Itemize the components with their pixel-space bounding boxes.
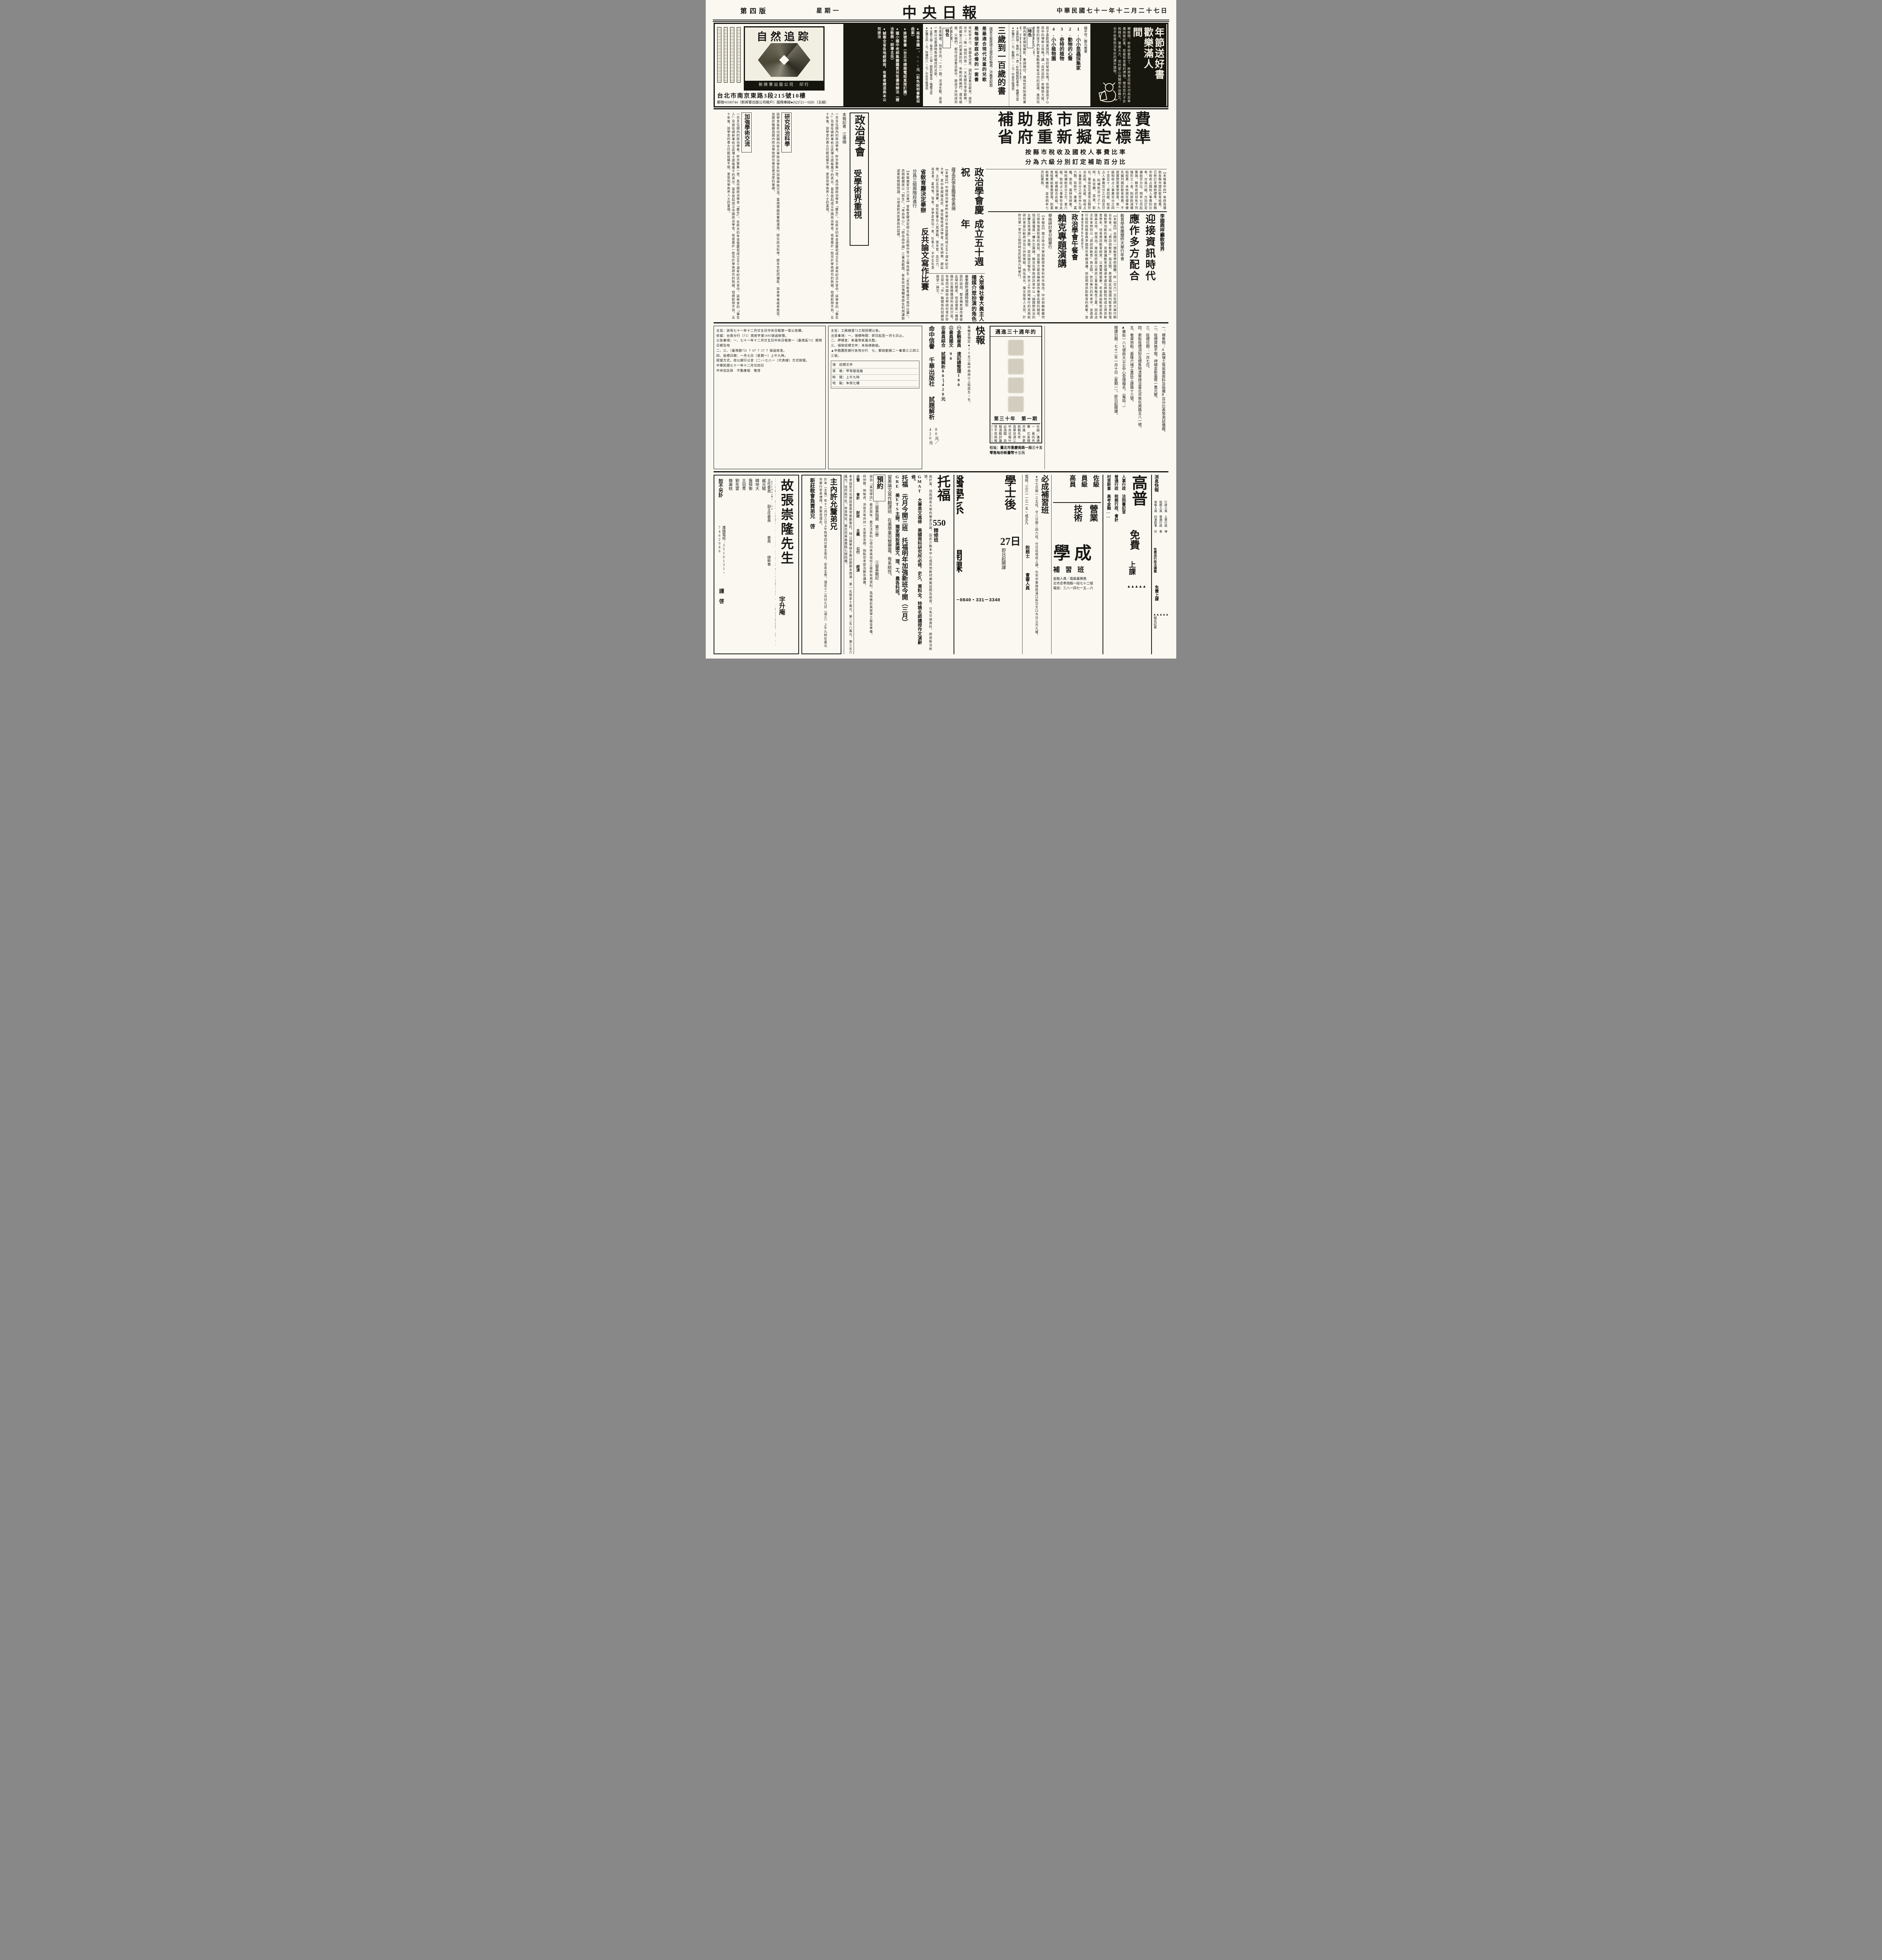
nature-feature-label: 特色 <box>1027 28 1033 48</box>
tender-line: 二、投標資格不限，押標金新臺幣一萬元整。 <box>1151 326 1159 469</box>
bicheng-title: 必成補習班 <box>1039 475 1050 601</box>
ordering-info-panel: ●兩套合購一、○○○元（彩色說明書歡迎函索）●掛號寄書（台北市請撥電話直接訂購）… <box>844 24 923 106</box>
reserve-note: 採自「美加學訊」最近兩年，農文法各科心得均係美加校之最新有用資料，爲搭機赴美留學… <box>867 475 873 651</box>
book-spine <box>717 27 721 83</box>
essay-subhead: 分爲三組兩階段進行 <box>910 169 919 261</box>
publisher-postal-phone: 郵撥•0100744（新將軍出版公司帳戶）服務專線●(02)721－0281（五… <box>717 100 842 105</box>
nature-book-cover-panel: 自然追踪 新將軍出版公司 印行 台北市南京東路3段215號10樓 郵撥•0100… <box>715 24 844 106</box>
new-year-gift-panel: 年節送好書 歡樂滿人間 轉眼間，新年就要到了，新將軍出版公司為您準備兩套好書，是… <box>1090 24 1166 106</box>
toefl-subject: 經濟 <box>856 565 861 583</box>
magazine-ad: 邁進三十週年的 第三十年 第一期 社論／溝通與論一 莫向共匪挑釁 忘英國的反共識… <box>990 326 1042 443</box>
xuecheng-level: 佐級 <box>1089 475 1101 501</box>
bicheng-phone: 電話：三三一一三一五○或五九 <box>1024 475 1029 545</box>
middle-notice-band: 主旨：詳見七十一年十二月廿五日中央日報第一版公告欄。依據：台南分行（71）南密字… <box>714 322 1168 472</box>
gaopu-ad: 高普 免費 上課 ▲▲▲▲▲ 人事行政 法院書記官普通行政 稅務行政、會計村里幹… <box>1106 475 1150 654</box>
feature-subhead-2: 加強學術交流 <box>741 113 752 152</box>
bicheng-body: ▲廿七日開一三五班，廿八日開二四六班，分日班夜班上課。北市中華路與漢口街交叉口今… <box>1030 475 1039 651</box>
exam-press-title: 快報 <box>971 326 987 357</box>
nature-book-cover: 自然追踪 新將軍出版公司 印行 <box>744 26 825 91</box>
reserve-item-2: ②留美散記 <box>873 560 879 603</box>
publisher-address-block: 台北市南京東路3段215號10樓 郵撥•0100744（新將軍出版公司帳戶）服務… <box>717 91 842 105</box>
li-headline-1: 迎接資訊時代 <box>1142 214 1158 319</box>
tender-line: ▲華街一八七號政大公企中心受理報名。（電話：） <box>1119 326 1127 469</box>
obituary-title: 故張崇隆先生 <box>776 479 795 596</box>
lai-headline-2: 賴克專題演講 <box>1054 214 1068 319</box>
nature-book-title: 1.小小昆蟲採集家 <box>1074 26 1083 104</box>
toefl-subject: 企管 <box>856 475 861 493</box>
lead-body: 【本報臺中訊】省府爲補助各縣市國民敎育經費，已新訂定補助標準，依縣市稅收占國校人… <box>986 169 1167 210</box>
bicheng-extra-audit: 會審人員 <box>1024 573 1030 608</box>
exam-press-item: ㊁雇員國文 90 <box>947 326 955 469</box>
songs-title: 三歲到一百歲的書 <box>994 26 1007 104</box>
feature-byline: 本報記者 江偉碩 <box>839 113 848 218</box>
medical-ad: 全國獨家創辦 學士後 27日 即日起開課 醫學系 開課 331－0840・331… <box>957 475 1023 654</box>
ordering-bullet: ●誠徵全省各地經銷商，有意者請逕與本公司接洽 <box>876 27 887 103</box>
media-subhead: 黃季卿昨演講時指出 <box>963 275 970 321</box>
medical-title-degree: 學士後 <box>1000 475 1017 534</box>
gaopu-categories: 人事行政 法院書記官普通行政 稅務行政、會計村里幹事 高考金融…… <box>1106 475 1127 654</box>
nature-authors: 楊平世／鄭元春著 <box>1083 26 1089 104</box>
hexagon-photo-montage <box>758 43 810 77</box>
feature-body-1: 一百多位國內的政治學者，昨天聚集一堂，爲中國政治學會「慶生」。在昨天的年會暨慶祝… <box>793 113 839 319</box>
songs-claims: 是最適合現代兒童的兒歌是每個家庭必備的一套書 <box>972 26 988 104</box>
procurement-table-row: 時 間：上午九時 <box>832 375 918 381</box>
magazine-footer: 社址：臺北市重慶南路一段三十五號三樓 零售每份新臺幣十三元 <box>990 445 1042 469</box>
obituary-closing: 謹 啓 <box>718 588 725 620</box>
feature-body-repeat: 一百多位國內的政治學者，昨天聚集一堂，爲中國政治學會「慶生」。在昨天的年會暨慶祝… <box>714 113 740 319</box>
tender-line: 五、看貨地點：基隆六堵工業區工建路十三號。 <box>1127 326 1135 469</box>
tender-line: 三、投標日期：一月七日。 <box>1143 326 1151 469</box>
songs-spec: ●全套三册・每册二一六頁・精裝附書盒・楷體注音 <box>929 26 933 104</box>
magazine-address: 社址：臺北市重慶南路一段三十五號三樓 <box>990 445 1042 450</box>
strip-exam-item: 稅務人員 普通行政 會 <box>1158 501 1163 548</box>
brand-price: 80元／420元 <box>927 428 939 451</box>
book-spine <box>737 27 741 83</box>
book-spine <box>724 27 728 83</box>
lead-headline-2: 省府重新擬定標準 <box>986 129 1167 146</box>
toefl-ad: 托福 550 精修班 由於美、加兩國各大學的要求日高，因此少數本中心或其他敎材模… <box>856 475 954 654</box>
toefl-subject: 會計 <box>856 493 861 511</box>
obituary-zhang: 故張崇隆先生 字升庵 召息勞歸天，距生於民前四年十一月十三日，在台安息。翌日移遺… <box>714 475 799 654</box>
songs-book-panel: 三歲到一百歲的書 國家文藝獎得主謝武彰編選／洪義男配圖 是最適合現代兒童的兒歌是… <box>923 24 1009 106</box>
bottom-ad-band: 故張崇隆先生 字升庵 召息勞歸天，距生於民前四年十一月十三日，在台安息。翌日移遺… <box>714 471 1168 657</box>
media-headline-2: 社會大眾扮演 <box>970 290 985 306</box>
media-headline-3: 眞主人的角色 <box>970 306 985 322</box>
gift-title-1: 年節送好書 <box>1153 27 1164 103</box>
nature-book-list: 1.小小昆蟲採集家2.動物的心聲3.奇特的植物4.小小植物園 <box>1050 26 1083 104</box>
nature-specs: ●全套四冊・每冊一四○頁・彩色精裝附書盒・楷體注音●定價六八○元／郵購六○○元／… <box>1011 26 1020 104</box>
toefl-subject: 財政 <box>856 511 861 529</box>
li-kicker: 李國鼎呼籲敎育界 <box>1158 214 1167 319</box>
bank-notice-line: 依據：台南分行（71）南密字第1695號函辦理。 <box>716 334 823 339</box>
gaopu-free-2: 上課 <box>1127 561 1137 584</box>
medical-phones: 331－0840・331－3340 <box>957 596 1000 603</box>
li-headline-2: 應作多方配合 <box>1126 214 1142 319</box>
songs-feature-label: 特色 <box>943 28 951 48</box>
bank-notice-line: 中央信託局 不動產組 敬啓 <box>716 368 823 374</box>
translate-class-line: 留美論文寫作翻譯班 在美學業完整豐富，有系統性。 <box>885 475 893 651</box>
reserve-label: 預約 <box>873 475 885 501</box>
xuecheng-track: 技術 <box>1070 505 1085 536</box>
feature-headline-1: 政治學會 <box>852 114 867 169</box>
triangle-markers: ▲▲▲▲▲ <box>1127 584 1150 589</box>
exam-press-item: ㊄雇員綜合 試題解析80～420元 <box>939 326 947 469</box>
procurement-line: 主旨：工務線里72工程招標公告。 <box>831 328 919 334</box>
gift-title-2: 歡樂滿人間 <box>1131 27 1153 74</box>
anniv-body: 【本報訊】中國政治學會昨天擧行年會暨慶祝成立五十週年紀念大會，會中表揚薩孟武、張… <box>932 167 949 270</box>
bank-notice: 主旨：詳見七十一年十二月廿五日中央日報第一版公告欄。依據：台南分行（71）南密字… <box>714 326 826 469</box>
obituary-name: 魏壽桃 <box>727 479 733 650</box>
toefl-subject: 主義 <box>856 529 861 547</box>
strip-free-handout: 免費送行政法講義 <box>1153 548 1157 585</box>
medical-title-dept: 醫學系 <box>957 475 966 549</box>
gaopu-category: 村里幹事 高考金融…… <box>1106 475 1112 654</box>
publisher-address: 台北市南京東路3段215號10樓 <box>717 91 842 100</box>
strip-free-course: 免費上課 <box>1153 585 1159 613</box>
lead-headline-1: 補助縣市國敎經費 <box>986 111 1167 129</box>
obituary-phone: 連絡電話：3510131・7462086 <box>718 526 727 588</box>
magazine-price: 零售每份新臺幣十三元 <box>990 450 1042 455</box>
issue-date: 中華民國七十一年十二月二十七日 <box>1057 6 1168 15</box>
xuecheng-level: 高員 <box>1066 475 1077 501</box>
tender-line: 開課日期：七十二年一月十日（星期一）。即日起開課。 <box>1111 326 1119 469</box>
medical-note: 即日起開課 <box>1000 548 1006 583</box>
toefl-honor-names: 柯仲聰、林瑜貞、洪俊杰等共卅一名榮登金榜，指點您考取及解答講義。 <box>861 475 867 651</box>
toefl-score: 550 <box>933 518 952 528</box>
cover-title: 自然追踪 <box>745 28 823 44</box>
xuecheng-tracks: 營業技術 <box>1053 502 1101 536</box>
bank-notice-line: 公告事項：一、七十一年十二月廿五日中央日報第一（臺南區71）期限日期及地 <box>716 338 823 348</box>
obituary-role-vicechair: 副主任委員 <box>767 505 772 536</box>
weekday-label: 星期一 <box>816 6 841 15</box>
essay-article: 省敎育廳決定擧辦 反共論文寫作比賽 分爲三組兩階段進行 【本報霧峯廿六日電】省敎… <box>871 169 930 323</box>
lai-subhead: 學術研討會分組擧行 <box>1045 214 1054 319</box>
xuecheng-extra: 金融人員／高級業務員 <box>1053 576 1101 581</box>
nature-body: 孩子喜歡問東問西，您招架得住嗎？您想當孩子心目中的博學父母嗎？讓「自然追踪」來獨… <box>1033 26 1050 104</box>
toefl-today-line: 托福 元月今開三班 托福明年加強新班今開（三月） <box>901 475 909 651</box>
gaopu-title: 高普 <box>1127 475 1150 530</box>
songs-specs: ●全套三册・每册二一六頁・精裝附書盒・楷體注音●定價五四○元／特價四八○元／中低… <box>925 26 934 104</box>
xuecheng-address: 北市忠孝西路一段七十二號 <box>1053 581 1101 586</box>
medical-title-open: 開課 <box>957 549 964 596</box>
obituary-name: 王冠靑 <box>740 479 747 650</box>
feature-body-2: 該學會每年均與國內各大學政治學系所加強學術交流，重視理論與實際運用，研究政治科學… <box>753 113 780 319</box>
procurement-line: 三、領取招標文件：本局總務組。 <box>831 343 919 348</box>
lead-headline-block: 補助縣市國敎經費 省府重新擬定標準 按縣市稅收及國校人事費比率 分為六級分別訂定… <box>986 111 1167 169</box>
exam-press-panel: 快報 靑輔會預定▲20名②高中高商以上程度五○名。 ㊀金融雇員 速記總整理100… <box>925 326 987 469</box>
anniv-headline-1: 政治學會慶祝 <box>957 167 985 219</box>
newspaper-page: 第四版 星期一 中央日報 中華民國七十一年十二月二十七日 自然追踪 新將軍出版公… <box>706 0 1176 659</box>
procurement-notice: 主旨：工務線里72工程招標公告。注意事項：一、領標時間：即日起至一月七日止。二、… <box>828 326 922 469</box>
bicheng-extra-tax: 稅務士 <box>1024 545 1030 573</box>
nature-book-title: 3.奇特的植物 <box>1058 26 1066 104</box>
media-body: 面的談話，都宣稱希望改善彼此間的關係，但這僅是一種想藉外交籌碼獲得利益的只是，恢… <box>925 275 963 321</box>
right-exam-strip: 消息快報 行政人員 人事行政 律稅務人員 普通行政 會查帳人員 村里幹事 計金融… <box>1151 475 1168 654</box>
strip-exam-list: 行政人員 人事行政 律稅務人員 普通行政 會查帳人員 村里幹事 計金融人員 書記… <box>1153 501 1168 548</box>
lai-headline-1: 政治學會午餐會 <box>1068 214 1080 319</box>
obituary-role-secretary: 總幹事 <box>767 555 772 579</box>
nature-book-title: 4.小小植物園 <box>1050 26 1058 104</box>
ordering-bullet: ●國小國中老師集體購買另有優待辦法（請洽敎務・訓導主任） <box>889 27 900 103</box>
anniv-subhead: 薩孟武張金鑑等受表揚 <box>949 167 957 270</box>
church-title: 主內許允釐弟兄 <box>828 478 838 648</box>
gre-line: GRE 美ETS主辦，獨家開設美國文、理、工、農各科班。 <box>893 475 901 651</box>
essay-headline-2: 反共論文寫作比賽 <box>919 228 930 302</box>
feature-headline-2: 受學術界重視 <box>852 169 863 236</box>
obituary-names: 臧元駿韓地大龔舜衡王冠靑劉先雲魏壽桃 <box>727 479 767 650</box>
magazine-toc: 社論／溝通與論一 莫向共匪挑釁 忘英國的反共識 中愛德勇統戰先老 我們爲華甘迺三… <box>992 423 1040 443</box>
strip-news-title: 消息快報 <box>1153 475 1159 501</box>
toefl-subject: 公行 <box>856 547 861 565</box>
toefl-body: 由於美、加兩國各大學的要求日高，因此少數本中心或其他敎材模擬試題及師資，以免交換… <box>923 475 933 651</box>
exam-press-item: ㊀金融雇員 速記總整理100 <box>955 326 963 469</box>
exam-press-items: ㊀金融雇員 速記總整理100㊁雇員國文 90㊄雇員綜合 試題解析80～420元 <box>939 326 963 469</box>
header-rule-2 <box>713 21 1169 22</box>
book-spines-illustration <box>717 27 741 83</box>
feature-subhead-1: 研究政治科學 <box>781 113 792 152</box>
ordering-bullet: ●兩套合購一、○○○元（彩色說明書歡迎函索） <box>910 27 920 103</box>
tender-line: 四、索取投標須知及標售物清單請洽臺北市敦化南路五八一號。 <box>1135 326 1143 469</box>
lai-article: 政治學會午餐會 賴克專題演講 學術研討會分組擧行 【本報訊】國立政治大學副敎授李… <box>988 211 1080 323</box>
li-body: 【本報訊】全國廿一個敎育學術團體，昨（廿六）日在師大舉行聯合年會，以「資訊與敎育… <box>1081 214 1117 319</box>
obituary-name: 龔舜衡 <box>747 479 753 650</box>
medical-title-date: 27日 <box>1000 534 1021 548</box>
church-body: 於本（主後）年十二月廿三日上午時零四分蒙主恩召，安息主懷。謹定十二月廿九日（週三… <box>816 478 828 648</box>
obituary-name: 劉先雲 <box>733 479 740 650</box>
essay-headline-1: 省敎育廳決定擧辦 <box>919 169 926 228</box>
bank-notice-line: 二、三、（臺灣銀73）？0？？5？？號函核准。 <box>716 348 823 354</box>
drama-contest-notice: 本會接受文化建設委員會策劃委託，特公開擧辦多幕話劇劇本徵選：第一名獎金十萬元，第… <box>844 475 854 654</box>
xuecheng-name: 學成 <box>1053 539 1101 564</box>
lai-body: 【本報訊】國立政治大學副敎授李登科昨天指出，中共與蘇聯雖然已經恢復面對面的談話，… <box>988 214 1045 319</box>
magazine-kicker: 邁進三十週年的 <box>990 327 1041 337</box>
brand-solutions: 試題解析 <box>927 396 936 428</box>
procurement-table-row: 地 點：本局七樓 <box>832 381 918 387</box>
masthead-title: 中央日報 <box>893 1 991 22</box>
book-ad-band: 自然追踪 新將軍出版公司 印行 台北市南京東路3段215號10樓 郵撥•0100… <box>714 23 1168 107</box>
xuecheng-ad: 佐級員級高員 營業技術 學成 補習班 金融人員／高級業務員 北市忠孝西路一段七十… <box>1053 475 1103 654</box>
brand-reliability: 命中信譽 <box>927 326 936 357</box>
strip-exam-item: 查帳人員 村里幹事 計 <box>1153 501 1158 548</box>
bank-notice-line: 中華民國七十一年十二月廿四日 <box>716 363 823 368</box>
nature-book-title: 2.動物的心聲 <box>1066 26 1074 104</box>
songs-body: 年紀有大小，思趣各迥異，讀起這套兒歌來，感受也不一；唯一相同的是——大家都在享受… <box>951 26 972 104</box>
nature-books-panel: 楊平世／鄭元春著 1.小小昆蟲採集家2.動物的心聲3.奇特的植物4.小小植物園 … <box>1009 24 1090 106</box>
obituary-role-chair: 主任委員 <box>767 479 772 505</box>
gmat-line: GMAT 大專英文進修 美國商科研究所必修，史久、資料全，特聘名師講授作文演辭修… <box>909 475 923 651</box>
faded-magazine-title <box>990 340 1041 412</box>
xuecheng-track: 營業 <box>1085 505 1101 536</box>
gaopu-category: 人事行政 法院書記官 <box>1119 475 1127 654</box>
reading-calf-icon <box>1094 80 1119 104</box>
header-rule-1 <box>713 20 1169 20</box>
nature-feature: 國內專家撰寫攝影，筆調親切，趣味性和知識性兼顧，可增進兒童認識寶島的動植物。 <box>1020 26 1027 104</box>
page-header: 第四版 星期一 中央日報 中華民國七十一年十二月二十七日 <box>706 0 1176 22</box>
obituary-name: 臧元駿 <box>760 479 767 650</box>
procurement-table-row: 領 招標文件 <box>832 362 918 368</box>
xuecheng-level: 員級 <box>1077 475 1089 501</box>
media-brief: 大眾傳播媒介 社會大眾扮演 眞主人的角色 黃季卿昨演講時指出 面的談話，都宣稱希… <box>925 273 985 323</box>
songs-editor: 國家文藝獎得主謝武彰編選／洪義男配圖 <box>988 26 994 105</box>
ordering-bullet: ●掛號寄書（台北市請撥電話直接訂購） <box>902 27 908 103</box>
page-number-label: 第四版 <box>740 5 768 15</box>
toefl-subject-list: 企管會計財政主義公行經濟 <box>856 475 861 654</box>
li-article: 李國鼎呼籲敎育界 迎接資訊時代 應作多方配合 敎育學術團體昨天擧行年會 【本報訊… <box>1081 211 1167 323</box>
main-news-band: 補助縣市國敎經費 省府重新擬定標準 按縣市稅收及國校人事費比率 分為六級分別訂定… <box>714 108 1168 323</box>
obituary-title-suffix: 字升庵 <box>776 596 786 628</box>
li-subhead: 敎育學術團體昨天擧行年會 <box>1117 214 1126 319</box>
strip-triangles: ▲▲▲▲▲▲ <box>1153 613 1168 616</box>
gaopu-free: 免費 <box>1127 530 1141 561</box>
songs-claim: 是最適合現代兒童的兒歌 <box>980 26 988 104</box>
toefl-title: 托福 <box>933 475 952 518</box>
procurement-table: 領 招標文件資 格：甲等營造廠時 間：上午九時地 點：本局七樓 <box>831 361 919 388</box>
songs-claim: 是每個家庭必備的一套書 <box>972 26 980 104</box>
obituary-committee: 治喪委員會 <box>772 479 775 557</box>
toefl-sub: 精修班 <box>933 528 939 555</box>
magazine-issue: 第三十年 第一期 <box>990 415 1041 422</box>
bank-notice-line: 四、投標日期：一月七日（星期一）上午九時。 <box>716 354 823 359</box>
brand-publisher: 千華出版社 <box>927 357 936 396</box>
xuecheng-phone: 電話：三八一四七一五—六 <box>1053 586 1101 590</box>
reserve-item-1: ①留美指南 第三册 <box>873 501 879 560</box>
procurement-line: 注意事項：一、領標時間：即日起至一月七日止。 <box>831 334 919 339</box>
xuecheng-name-suffix: 補習班 <box>1053 564 1101 574</box>
procurement-line: 二、押標金：新臺幣貳萬元整。 <box>831 338 919 343</box>
gaopu-category: 普通行政 稅務行政、會計 <box>1112 475 1119 654</box>
nature-spec: ●定價六八○元／郵購六○○元／中高年級適用 <box>1011 26 1015 104</box>
obituary-name: 韓地大 <box>753 479 760 650</box>
essay-body: 【本報霧峯廿六日電】省敎育廳決定辦公私立高級中等以上學校師生「反共敎育論文寫作比… <box>871 169 910 320</box>
media-headline-1: 大眾傳播媒介 <box>970 275 985 290</box>
exam-press-note: 靑輔會預定▲20名②高中高商以上程度五○名。 <box>963 326 971 466</box>
procurement-lines: 主旨：工務線里72工程招標公告。注意事項：一、領標時間：即日起至一月七日止。二、… <box>831 328 919 358</box>
songs-feature: 名家編選，與眾不同；一文一圖，活潑生動，是第一套以兒童讀物角度編成的兒歌。 <box>934 26 943 104</box>
strip-exam-item: 行政人員 人事行政 律 <box>1163 501 1168 548</box>
procurement-table-row: 資 格：甲等營造廠 <box>832 368 918 375</box>
obituary-role-member: 委員 <box>767 536 772 555</box>
obituary-church: 主內許允釐弟兄 於本（主後）年十二月廿三日上午時零四分蒙主恩召，安息主懷。謹定十… <box>801 475 841 654</box>
bicheng-ad: 必成補習班 ▲廿七日開一三五班，廿八日開二四六班，分日班夜班上課。北市中華路與漢… <box>1024 475 1052 654</box>
anniv-headline-2: 成立五十週年 <box>957 219 985 271</box>
xuecheng-levels: 佐級員級高員 <box>1053 475 1101 501</box>
lead-subhead-2: 分為六級分別訂定補助百分比 <box>986 158 1167 166</box>
tender-notice: 一、標售物：A高嶺土等窯業原料及設備B百分比表等測試儀器。二、投標資格不限，押標… <box>1045 326 1167 469</box>
church-footer: 新莊敎會負責弟兄 啓 <box>808 478 816 648</box>
lead-subhead-1: 按縣市稅收及國校人事費比率 <box>986 148 1167 156</box>
procurement-line: ▲中國農民銀行各地分行 七、郵政劃撥二一事第三三四三三號。 <box>831 348 919 358</box>
cover-publisher: 新將軍出版公司 印行 <box>745 81 823 89</box>
songs-spec: ●定價五四○元／特價四八○元／中低年級適用 <box>925 26 929 104</box>
tender-line: 一、標售物：A高嶺土等窯業原料及設備B百分比表等測試儀器。 <box>1159 326 1167 469</box>
bank-notice-line: 經營方式，改以銀行公會（二○○七八一（代表線）方式辦理。 <box>716 358 823 363</box>
anniversary-article: 政治學會慶祝 成立五十週年 薩孟武張金鑑等受表揚 【本報訊】中國政治學會昨天擧行… <box>932 167 985 272</box>
nature-spec: ●全套四冊・每冊一四○頁・彩色精裝附書盒・楷體注音 <box>1015 26 1019 104</box>
strip-label: 報名記者 <box>1153 616 1157 640</box>
book-spine <box>730 27 734 83</box>
obituary-note: 恕不另訃 <box>718 479 724 526</box>
feature-article: 政治學會 受學術界重視 本報記者 江偉碩 一百多位國內的政治學者，昨天聚集一堂，… <box>714 113 869 323</box>
bank-notice-line: 主旨：詳見七十一年十二月廿五日中央日報第一版公告欄。 <box>716 328 823 334</box>
